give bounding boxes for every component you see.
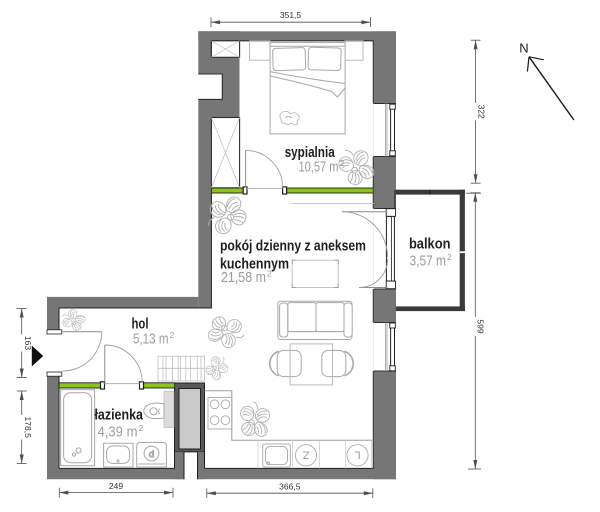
svg-text:d: d bbox=[149, 449, 154, 460]
svg-text:2: 2 bbox=[340, 158, 345, 168]
svg-text:łazienka: łazienka bbox=[94, 408, 143, 424]
svg-text:249: 249 bbox=[109, 481, 123, 491]
svg-text:N: N bbox=[519, 41, 528, 56]
svg-text:balkon: balkon bbox=[409, 237, 451, 253]
svg-text:hol: hol bbox=[132, 316, 149, 332]
svg-text:322: 322 bbox=[476, 105, 486, 119]
svg-text:599: 599 bbox=[476, 319, 486, 333]
svg-text:3,57 m: 3,57 m bbox=[410, 254, 447, 270]
svg-text:178,5: 178,5 bbox=[23, 417, 33, 439]
svg-text:pokój dzienny z aneksem: pokój dzienny z aneksem bbox=[220, 239, 366, 255]
svg-text:163: 163 bbox=[23, 336, 33, 350]
svg-text:2: 2 bbox=[447, 252, 452, 262]
svg-text:2: 2 bbox=[170, 330, 175, 340]
svg-text:4,39 m: 4,39 m bbox=[98, 425, 138, 441]
svg-text:L: L bbox=[354, 448, 360, 460]
svg-text:10,57 m: 10,57 m bbox=[299, 159, 339, 175]
svg-text:5,13 m: 5,13 m bbox=[133, 332, 169, 348]
svg-text:21,58 m: 21,58 m bbox=[221, 270, 266, 286]
svg-text:351,5: 351,5 bbox=[280, 10, 302, 20]
svg-text:366,5: 366,5 bbox=[279, 482, 301, 492]
svg-text:2: 2 bbox=[139, 423, 144, 433]
svg-text:Z: Z bbox=[302, 448, 309, 460]
svg-text:2: 2 bbox=[267, 269, 272, 279]
